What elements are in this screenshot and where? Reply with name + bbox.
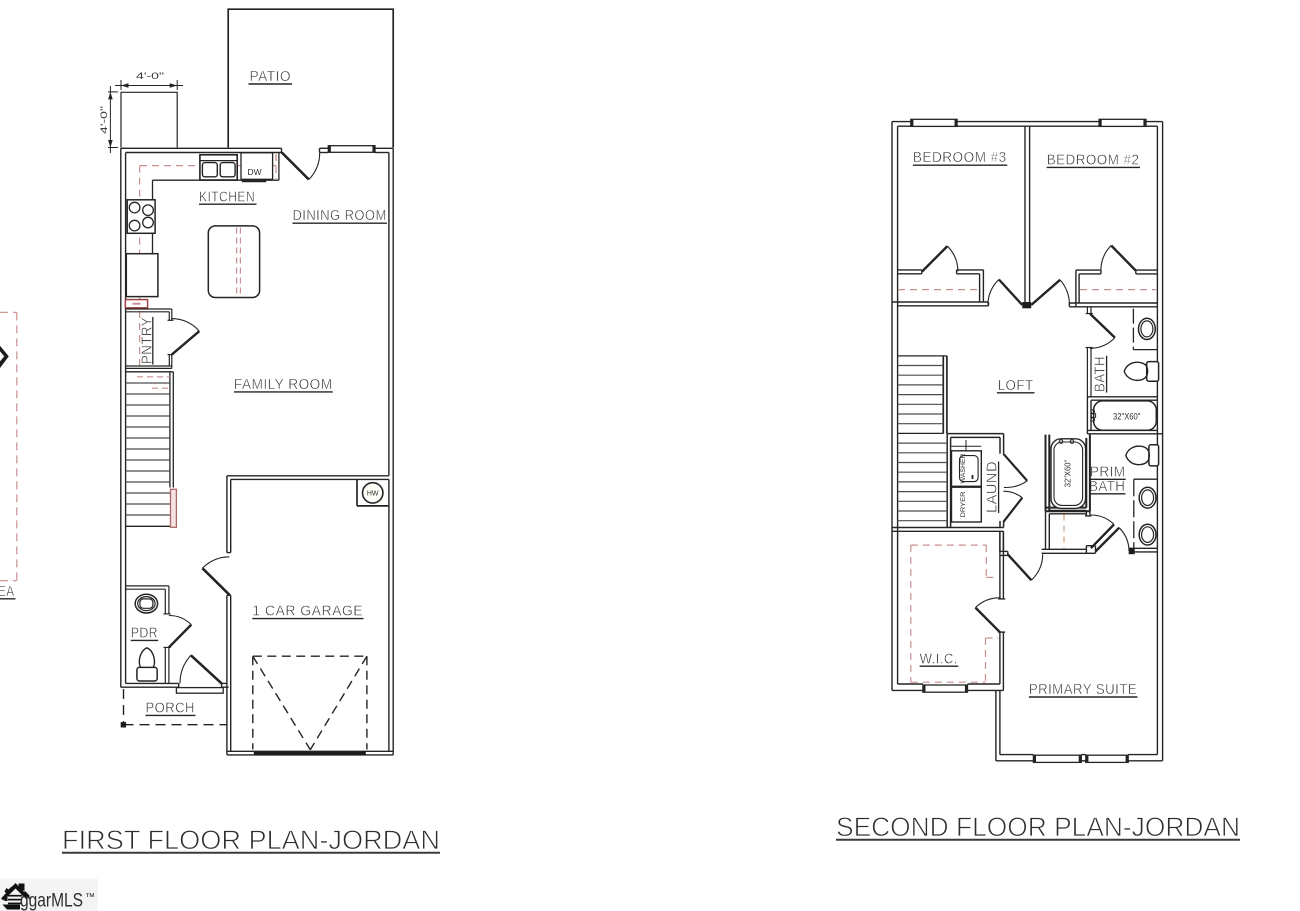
svg-text:BEDROOM #3: BEDROOM #3	[913, 149, 1007, 166]
svg-text:PRIMARY SUITE: PRIMARY SUITE	[1029, 681, 1137, 698]
svg-text:ggarMLS: ggarMLS	[20, 891, 83, 911]
svg-text:BATH: BATH	[1089, 478, 1125, 495]
svg-text:32"X60": 32"X60"	[1062, 460, 1072, 488]
svg-text:PATIO: PATIO	[250, 68, 292, 85]
svg-text:4'-0": 4'-0"	[136, 71, 164, 81]
svg-text:4'-0": 4'-0"	[99, 106, 109, 134]
svg-text:32"X60": 32"X60"	[1113, 411, 1141, 421]
svg-text:SECOND FLOOR PLAN-JORDAN: SECOND FLOOR PLAN-JORDAN	[836, 812, 1240, 842]
svg-text:BEDROOM #2: BEDROOM #2	[1047, 151, 1140, 168]
svg-text:DRYER: DRYER	[960, 491, 967, 517]
svg-text:LOFT: LOFT	[998, 377, 1034, 394]
svg-text:EA: EA	[0, 583, 15, 600]
svg-text:™: ™	[85, 892, 95, 903]
svg-text:FAMILY ROOM: FAMILY ROOM	[234, 376, 333, 393]
svg-text:W.I.C.: W.I.C.	[920, 650, 958, 667]
svg-text:KITCHEN: KITCHEN	[199, 188, 255, 205]
svg-text:FIRST FLOOR PLAN-JORDAN: FIRST FLOOR PLAN-JORDAN	[62, 825, 440, 855]
svg-text:DW: DW	[248, 167, 262, 177]
svg-text:PDR: PDR	[131, 625, 158, 642]
svg-text:HW: HW	[367, 490, 379, 497]
svg-text:PORCH: PORCH	[146, 700, 195, 717]
svg-text:DINING ROOM: DINING ROOM	[293, 207, 387, 224]
svg-text:1 CAR GARAGE: 1 CAR GARAGE	[252, 603, 363, 620]
svg-text:WASHER: WASHER	[960, 453, 967, 483]
